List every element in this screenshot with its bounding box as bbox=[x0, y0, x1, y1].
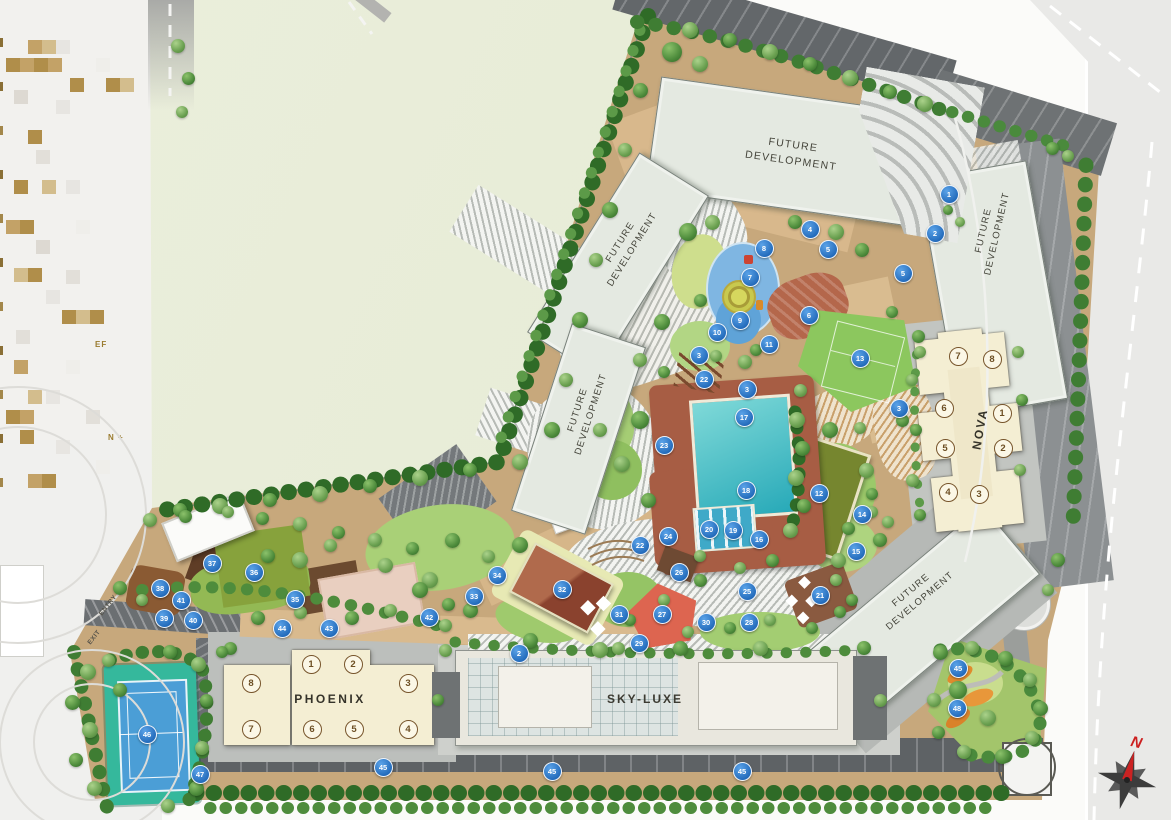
amenity-marker-5: 5 bbox=[819, 240, 838, 259]
tree bbox=[957, 745, 971, 759]
play-equipment-icon bbox=[756, 300, 763, 310]
tree bbox=[384, 604, 397, 617]
tree bbox=[191, 657, 206, 672]
tree bbox=[783, 523, 798, 538]
tree bbox=[822, 422, 838, 438]
tree bbox=[256, 512, 269, 525]
amenity-marker-41: 41 bbox=[172, 591, 191, 610]
tree bbox=[692, 56, 708, 72]
tree bbox=[445, 533, 460, 548]
tree bbox=[176, 106, 188, 118]
amenity-marker-11: 11 bbox=[760, 335, 779, 354]
tree bbox=[463, 463, 477, 477]
tree bbox=[955, 217, 965, 227]
tree bbox=[412, 582, 428, 598]
phoenix-unit-circle-8: 8 bbox=[242, 674, 261, 693]
tree bbox=[762, 44, 778, 60]
compass-rose: N bbox=[1088, 730, 1166, 818]
tree bbox=[324, 539, 337, 552]
tree bbox=[710, 350, 722, 362]
tree bbox=[949, 681, 967, 699]
tree bbox=[910, 424, 922, 436]
compass-north-label: N bbox=[1129, 733, 1145, 752]
nova-unit-circle-7: 7 bbox=[949, 347, 968, 366]
tree bbox=[980, 710, 996, 726]
amenity-marker-4: 4 bbox=[801, 220, 820, 239]
amenity-marker-22: 22 bbox=[631, 536, 650, 555]
tree bbox=[933, 645, 948, 660]
tree bbox=[113, 581, 127, 595]
tree bbox=[572, 312, 588, 328]
tree bbox=[136, 594, 148, 606]
amenity-marker-5: 5 bbox=[894, 264, 913, 283]
amenity-marker-2: 2 bbox=[926, 224, 945, 243]
tree bbox=[293, 517, 307, 531]
tree bbox=[998, 651, 1013, 666]
amenity-marker-12: 12 bbox=[810, 484, 829, 503]
tree bbox=[195, 741, 209, 755]
tree bbox=[171, 39, 185, 53]
amenity-marker-10: 10 bbox=[708, 323, 727, 342]
amenity-marker-35: 35 bbox=[286, 590, 305, 609]
phoenix-unit-circle-6: 6 bbox=[303, 720, 322, 739]
tree bbox=[263, 493, 277, 507]
tree bbox=[614, 456, 630, 472]
building-label-phoenix: PHOENIX bbox=[270, 690, 390, 708]
amenity-marker-33: 33 bbox=[465, 587, 484, 606]
tree bbox=[512, 537, 528, 553]
amenity-marker-45: 45 bbox=[543, 762, 562, 781]
tree bbox=[87, 781, 102, 796]
amenity-marker-43: 43 bbox=[320, 619, 339, 638]
amenity-marker-45: 45 bbox=[949, 659, 968, 678]
tree bbox=[618, 143, 632, 157]
legend-letter-stubs bbox=[0, 38, 3, 47]
top-left-road bbox=[148, 0, 194, 110]
tree bbox=[161, 799, 175, 813]
tree bbox=[292, 552, 308, 568]
nova-unit-circle-6: 6 bbox=[935, 399, 954, 418]
tree bbox=[842, 70, 858, 86]
amenity-marker-32: 32 bbox=[553, 580, 572, 599]
amenity-marker-17: 17 bbox=[735, 408, 754, 427]
amenity-marker-44: 44 bbox=[273, 619, 292, 638]
amenity-marker-45: 45 bbox=[733, 762, 752, 781]
tree bbox=[906, 374, 918, 386]
amenity-marker-14: 14 bbox=[853, 505, 872, 524]
amenity-marker-29: 29 bbox=[630, 634, 649, 653]
tree bbox=[1042, 584, 1054, 596]
amenity-marker-25: 25 bbox=[738, 582, 757, 601]
amenity-marker-15: 15 bbox=[847, 542, 866, 561]
nova-unit-circle-5: 5 bbox=[936, 439, 955, 458]
tree bbox=[1016, 394, 1028, 406]
tree bbox=[854, 422, 866, 434]
amenity-marker-28: 28 bbox=[740, 613, 759, 632]
tree bbox=[831, 553, 846, 568]
tree bbox=[412, 470, 428, 486]
amenity-marker-21: 21 bbox=[811, 586, 830, 605]
tree bbox=[803, 57, 817, 71]
amenity-marker-3: 3 bbox=[890, 399, 909, 418]
amenity-marker-31: 31 bbox=[610, 605, 629, 624]
tree bbox=[917, 96, 933, 112]
tree bbox=[906, 474, 919, 487]
tree bbox=[927, 693, 941, 707]
nova-unit-circle-1: 1 bbox=[993, 404, 1012, 423]
amenity-marker-37: 37 bbox=[203, 554, 222, 573]
tree bbox=[182, 72, 195, 85]
tree bbox=[200, 694, 213, 707]
amenity-marker-36: 36 bbox=[245, 563, 264, 582]
tree bbox=[886, 306, 898, 318]
tree bbox=[654, 314, 670, 330]
tree bbox=[1033, 701, 1048, 716]
tree bbox=[855, 243, 869, 257]
tree bbox=[612, 642, 625, 655]
amenity-marker-9: 9 bbox=[731, 311, 750, 330]
building-label-skyluxe: SKY-LUXE bbox=[585, 690, 705, 708]
tree bbox=[662, 42, 682, 62]
tree bbox=[857, 641, 871, 655]
tree bbox=[378, 558, 393, 573]
amenity-marker-18: 18 bbox=[737, 481, 756, 500]
tree bbox=[1051, 553, 1065, 567]
tree bbox=[442, 598, 455, 611]
amenity-marker-6: 6 bbox=[800, 306, 819, 325]
tree bbox=[806, 622, 818, 634]
tree bbox=[65, 695, 80, 710]
tree bbox=[544, 422, 560, 438]
tree bbox=[866, 488, 878, 500]
tree bbox=[631, 411, 649, 429]
tree bbox=[1012, 346, 1024, 358]
tree bbox=[512, 454, 528, 470]
tree bbox=[764, 614, 776, 626]
tree bbox=[846, 594, 858, 606]
amenity-marker-39: 39 bbox=[155, 609, 174, 628]
amenity-marker-23: 23 bbox=[655, 436, 674, 455]
tree bbox=[1062, 150, 1074, 162]
tree bbox=[368, 533, 382, 547]
tree bbox=[633, 353, 647, 367]
amenity-marker-47: 47 bbox=[191, 765, 210, 784]
tree bbox=[766, 554, 779, 567]
site-plan-canvas: EF N + bbox=[0, 0, 1171, 820]
amenity-marker-46: 46 bbox=[138, 725, 157, 744]
tree bbox=[738, 355, 752, 369]
tree bbox=[482, 550, 495, 563]
tree bbox=[439, 644, 452, 657]
tree bbox=[673, 641, 688, 656]
tree bbox=[842, 522, 855, 535]
tree bbox=[794, 384, 807, 397]
tree bbox=[179, 510, 192, 523]
nova-unit-circle-2: 2 bbox=[994, 439, 1013, 458]
tree bbox=[694, 294, 707, 307]
amenity-marker-7: 7 bbox=[741, 268, 760, 287]
tree bbox=[883, 85, 897, 99]
tree bbox=[682, 22, 698, 38]
tree bbox=[682, 626, 694, 638]
tree bbox=[694, 574, 707, 587]
amenity-marker-24: 24 bbox=[659, 527, 678, 546]
tree bbox=[932, 726, 945, 739]
tree bbox=[432, 694, 444, 706]
tree bbox=[965, 641, 979, 655]
amenity-marker-45: 45 bbox=[374, 758, 393, 777]
amenity-marker-2: 2 bbox=[510, 644, 529, 663]
amenity-marker-1: 1 bbox=[940, 185, 959, 204]
amenity-marker-40: 40 bbox=[184, 611, 203, 630]
tree bbox=[222, 506, 234, 518]
tree bbox=[830, 574, 842, 586]
tree bbox=[1014, 464, 1026, 476]
phoenix-unit-circle-4: 4 bbox=[399, 720, 418, 739]
legend-fragment-1: EF bbox=[95, 340, 107, 349]
tree bbox=[797, 499, 811, 513]
nova-unit-circle-4: 4 bbox=[939, 483, 958, 502]
amenity-marker-8: 8 bbox=[755, 239, 774, 258]
tree bbox=[332, 526, 345, 539]
nova-unit-circle-8: 8 bbox=[983, 350, 1002, 369]
legend-fragment-2: N + bbox=[108, 433, 124, 442]
amenity-marker-3: 3 bbox=[738, 380, 757, 399]
tree bbox=[705, 215, 720, 230]
tree bbox=[724, 622, 736, 634]
tree bbox=[82, 722, 98, 738]
tree bbox=[143, 513, 157, 527]
tree bbox=[216, 646, 228, 658]
tree bbox=[734, 562, 746, 574]
tree bbox=[912, 330, 925, 343]
tree bbox=[641, 493, 656, 508]
tree bbox=[859, 463, 874, 478]
legend-panel-background bbox=[0, 0, 160, 470]
legend-redacted-gold-blocks bbox=[6, 30, 20, 44]
amenity-marker-48: 48 bbox=[948, 699, 967, 718]
tree bbox=[694, 550, 706, 562]
amenity-marker-42: 42 bbox=[420, 608, 439, 627]
tree bbox=[679, 223, 697, 241]
tree bbox=[795, 441, 810, 456]
tree bbox=[345, 611, 359, 625]
tree bbox=[69, 753, 83, 767]
tree bbox=[80, 664, 96, 680]
tree bbox=[914, 509, 926, 521]
tree bbox=[163, 645, 177, 659]
building-skyluxe-slab-right bbox=[698, 662, 838, 730]
phoenix-unit-circle-2: 2 bbox=[344, 655, 363, 674]
amenity-marker-34: 34 bbox=[488, 566, 507, 585]
tree bbox=[834, 606, 846, 618]
tree bbox=[312, 486, 328, 502]
tree bbox=[723, 33, 737, 47]
utility-structure-circle bbox=[998, 738, 1056, 796]
tree bbox=[789, 412, 805, 428]
phoenix-unit-circle-1: 1 bbox=[302, 655, 321, 674]
tree bbox=[828, 224, 844, 240]
tree bbox=[633, 83, 648, 98]
tree bbox=[943, 205, 953, 215]
building-skyluxe-slab-left bbox=[498, 666, 592, 728]
phoenix-unit-circle-5: 5 bbox=[345, 720, 364, 739]
nova-unit-circle-3: 3 bbox=[970, 485, 989, 504]
offsite-building bbox=[0, 565, 44, 657]
tree bbox=[261, 549, 275, 563]
tree bbox=[914, 346, 926, 358]
phoenix-unit-circle-3: 3 bbox=[399, 674, 418, 693]
amenity-marker-26: 26 bbox=[670, 563, 689, 582]
amenity-marker-38: 38 bbox=[151, 579, 170, 598]
amenity-marker-3: 3 bbox=[690, 346, 709, 365]
amenity-marker-13: 13 bbox=[851, 349, 870, 368]
amenity-marker-19: 19 bbox=[724, 521, 743, 540]
tree bbox=[439, 619, 452, 632]
tree bbox=[406, 542, 419, 555]
tree bbox=[363, 479, 377, 493]
tree bbox=[1046, 142, 1059, 155]
tree bbox=[592, 642, 608, 658]
play-equipment-icon bbox=[744, 255, 753, 264]
tree bbox=[658, 366, 670, 378]
amenity-marker-20: 20 bbox=[700, 520, 719, 539]
tree bbox=[753, 641, 768, 656]
tree bbox=[113, 683, 127, 697]
tree bbox=[1025, 731, 1039, 745]
tree bbox=[102, 654, 115, 667]
phoenix-unit-circle-7: 7 bbox=[242, 720, 261, 739]
tree bbox=[1023, 673, 1037, 687]
tree bbox=[995, 749, 1010, 764]
tree bbox=[559, 373, 573, 387]
amenity-marker-22: 22 bbox=[695, 370, 714, 389]
tree bbox=[788, 215, 802, 229]
tree bbox=[788, 470, 804, 486]
amenity-marker-16: 16 bbox=[750, 530, 769, 549]
tree bbox=[602, 202, 618, 218]
tree bbox=[874, 694, 887, 707]
tree bbox=[882, 516, 894, 528]
tree bbox=[251, 611, 265, 625]
amenity-marker-30: 30 bbox=[697, 613, 716, 632]
amenity-marker-27: 27 bbox=[653, 605, 672, 624]
tree bbox=[873, 533, 887, 547]
